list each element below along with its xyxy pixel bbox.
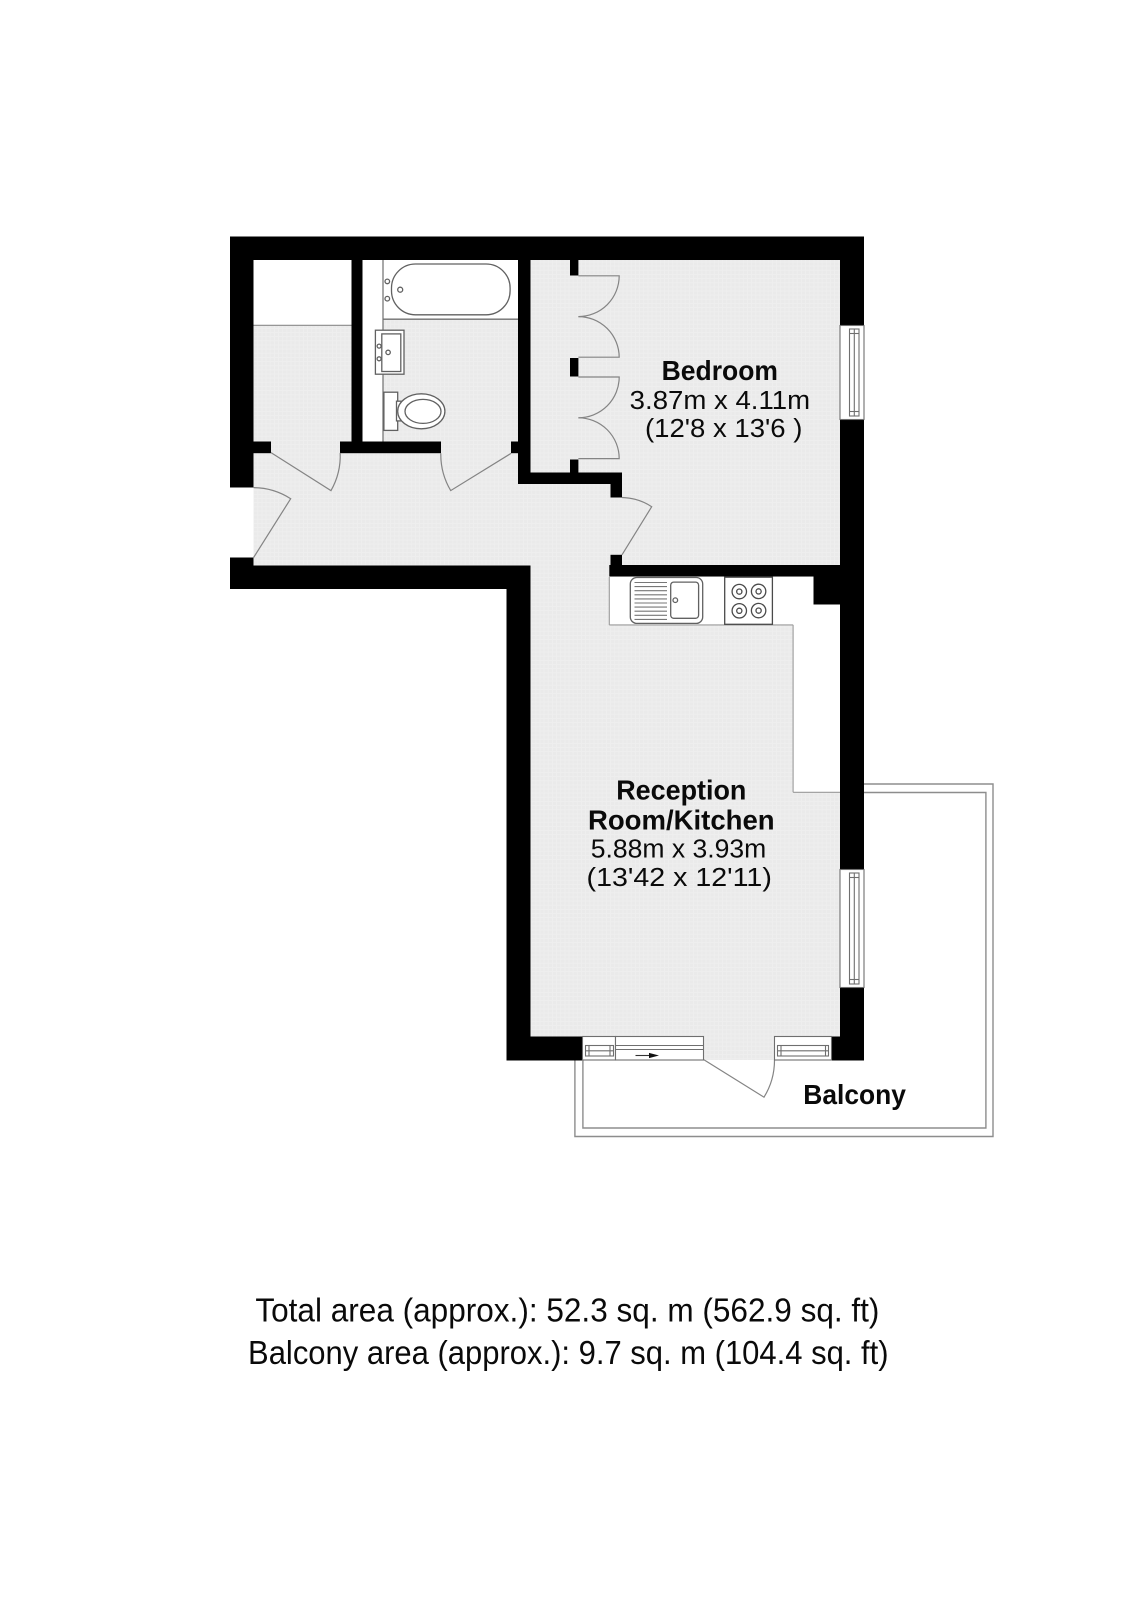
svg-text:Balcony area (approx.): 9.7 sq: Balcony area (approx.): 9.7 sq. m (104.4… [248,1334,889,1371]
svg-text:Room/Kitchen: Room/Kitchen [588,804,775,835]
svg-text:Reception: Reception [616,775,746,806]
svg-text:(13'42 x 12'11): (13'42 x 12'11) [587,864,772,892]
svg-text:Bedroom: Bedroom [662,355,778,386]
svg-text:Total area (approx.): 52.3 sq.: Total area (approx.): 52.3 sq. m (562.9 … [255,1292,879,1329]
svg-text:(12'8 x 13'6 ): (12'8 x 13'6 ) [645,415,802,443]
svg-text:Balcony: Balcony [803,1079,906,1110]
svg-text:5.88m x 3.93m: 5.88m x 3.93m [591,836,767,864]
svg-text:3.87m x 4.11m: 3.87m x 4.11m [630,387,810,415]
